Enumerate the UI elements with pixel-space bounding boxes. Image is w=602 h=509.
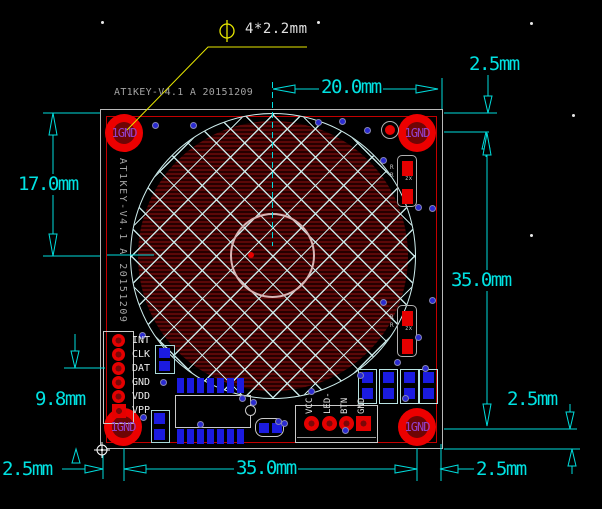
- resistor-code: zx: [405, 176, 412, 183]
- dimension-label-top-width: 20.0mm: [319, 77, 383, 98]
- diameter-symbol-icon: [220, 20, 234, 42]
- silkscreen-title-side: AT1KEY-V4.1 A 20151209: [117, 158, 128, 323]
- origin-marker-icon: [94, 442, 110, 458]
- hole-callout-label: 4*2.2mm: [245, 22, 308, 37]
- dimension-label-left-center-height: 17.0mm: [16, 174, 80, 195]
- resistor-mark: R: [390, 323, 394, 330]
- pin-label-gnd2: GND: [358, 378, 370, 414]
- pcb-drawing-canvas: 20.0mm 2.5mm 17.0mm 35.0mm 2.5mm 9.8mm 2…: [0, 0, 602, 509]
- dimension-label-right-bottom-offset: 2.5mm: [505, 389, 559, 410]
- dimension-overlay: [0, 0, 602, 509]
- resistor-mark: R: [390, 315, 394, 322]
- pin-label-led: LED-: [324, 378, 336, 414]
- pin-label-btn: BTN: [341, 378, 353, 414]
- hole-label: 1GND: [398, 127, 436, 140]
- pin-label-vpp: VPP: [132, 405, 150, 416]
- dimension-label-right-height: 35.0mm: [449, 270, 513, 291]
- hole-label: 1GND: [398, 421, 436, 434]
- dimension-label-bottom-left-offset: 2.5mm: [0, 459, 54, 480]
- resistor-mark: R: [390, 165, 394, 172]
- dimension-label-bottom-right-offset: 2.5mm: [474, 459, 528, 480]
- resistor-code: zx: [405, 326, 412, 333]
- pin-label-vdd: VDD: [132, 391, 150, 402]
- hole-label: 1GND: [105, 127, 143, 140]
- hole-label: 1GND: [104, 421, 142, 434]
- silkscreen-title-top: AT1KEY-V4.1 A 20151209: [114, 87, 253, 98]
- pin-label-gnd: GND: [132, 377, 150, 388]
- pin-label-dat: DAT: [132, 363, 150, 374]
- dimension-label-left-connector-height: 9.8mm: [33, 389, 87, 410]
- dimension-label-bottom-width: 35.0mm: [234, 458, 298, 479]
- resistor-mark: R: [390, 173, 394, 180]
- pin-label-int: INT: [132, 335, 150, 346]
- dimension-label-top-right-offset: 2.5mm: [467, 54, 521, 75]
- pin-label-vcc: VCC: [306, 378, 318, 414]
- pin-label-clk: CLK: [132, 349, 150, 360]
